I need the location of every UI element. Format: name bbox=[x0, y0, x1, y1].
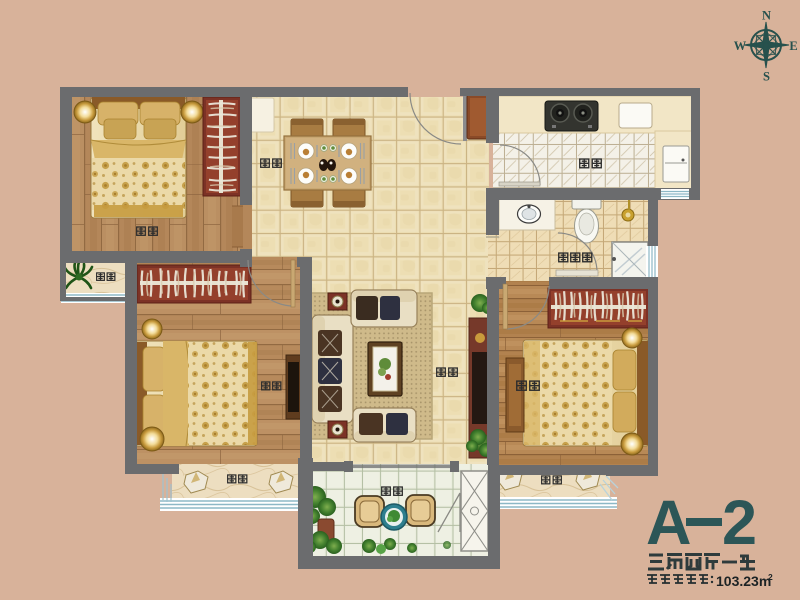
svg-text:E: E bbox=[789, 39, 797, 53]
svg-text:A: A bbox=[646, 488, 692, 558]
svg-text:S: S bbox=[763, 70, 770, 84]
svg-text:2: 2 bbox=[722, 488, 757, 558]
svg-text:2: 2 bbox=[768, 572, 773, 582]
svg-text:W: W bbox=[734, 39, 747, 53]
svg-text:N: N bbox=[762, 9, 771, 23]
svg-text:103.23m: 103.23m bbox=[716, 573, 771, 589]
